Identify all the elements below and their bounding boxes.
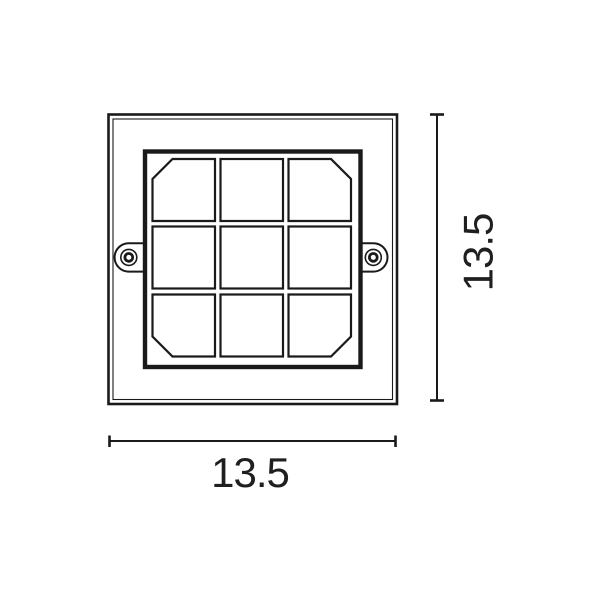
grid-cell-top-left: [153, 159, 216, 221]
fixture-linework: [109, 115, 445, 448]
grid-cell-middle-left: [153, 227, 216, 289]
grid-cell-bottom-left: [153, 295, 216, 357]
louver-grid: [153, 159, 352, 357]
height-dimension-label: 13.5: [456, 193, 501, 313]
drawing-canvas: 13.5 13.5: [0, 0, 600, 600]
grid-cell-top-middle: [221, 159, 284, 221]
width-dimension-label: 13.5: [190, 450, 310, 495]
width-dimension-line: [110, 436, 396, 448]
grid-cell-top-right: [289, 159, 352, 221]
fixture-bezel-frame: [145, 152, 361, 368]
screw-left-icon: [121, 249, 137, 265]
fixture-technical-drawing: [0, 0, 600, 600]
grid-cell-bottom-middle: [221, 295, 284, 357]
height-dimension-line: [430, 115, 444, 401]
grid-cell-middle-right: [289, 227, 352, 289]
grid-cell-middle-middle: [221, 227, 284, 289]
screw-right-icon: [365, 249, 381, 265]
grid-cell-bottom-right: [289, 295, 352, 357]
